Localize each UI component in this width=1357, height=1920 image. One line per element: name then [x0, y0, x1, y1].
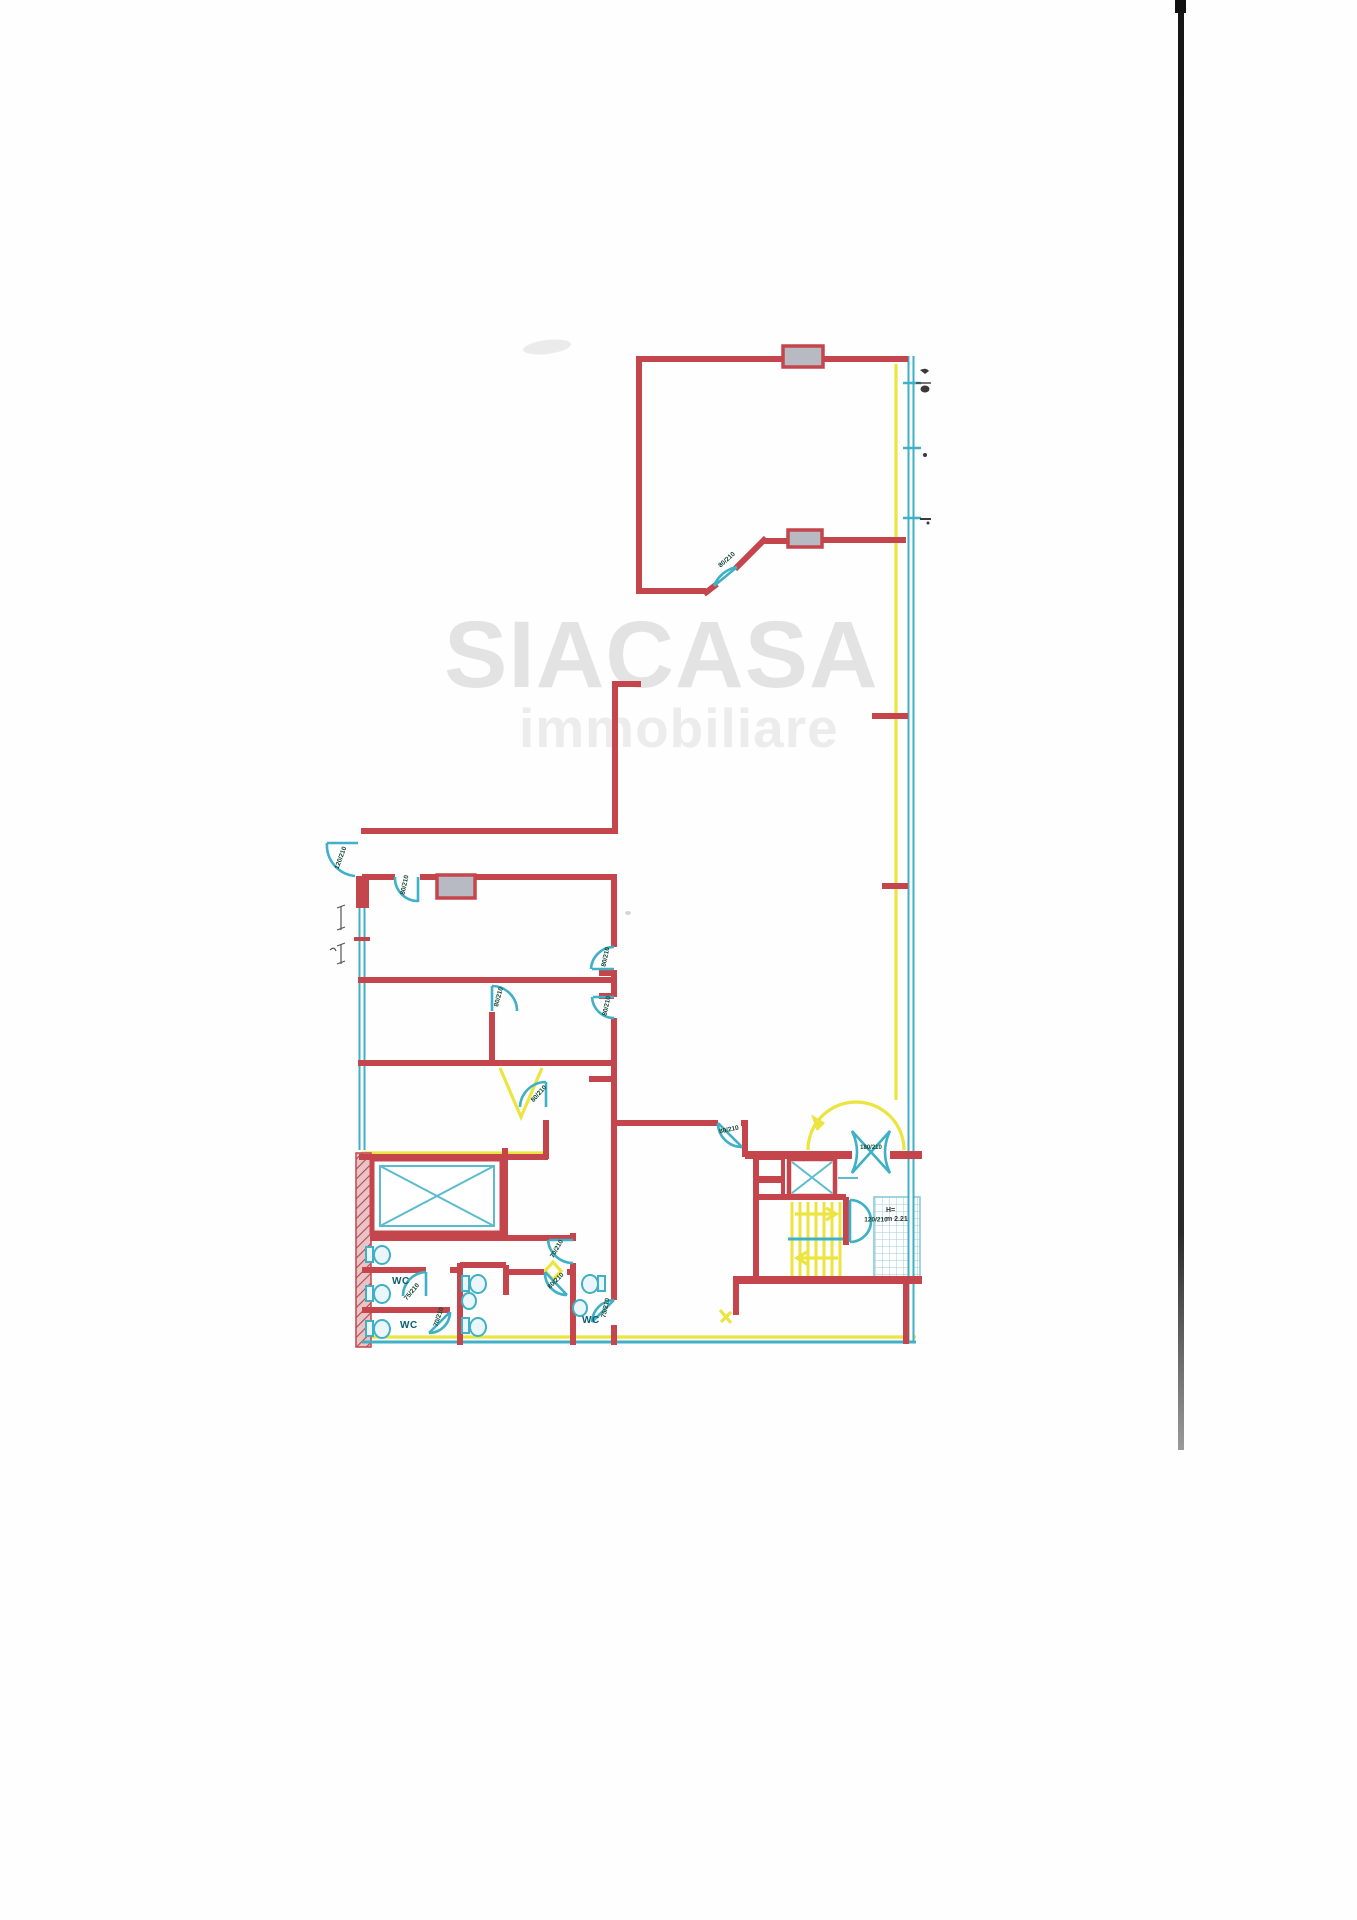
height-note-value: m 2.21: [886, 1215, 908, 1224]
floorplan-drawing: [0, 0, 1357, 1920]
door-arc: [714, 567, 737, 586]
scanner-line: [1175, 0, 1186, 1450]
sink: [462, 1293, 476, 1309]
room-label-wc: WC: [400, 1320, 418, 1331]
room-label-wc: WC: [582, 1315, 600, 1326]
dimension-marks: [330, 905, 345, 964]
toilet: [366, 1320, 390, 1338]
scanned-floorplan-page: SIACASA immobiliare: [0, 0, 1357, 1920]
toilet: [462, 1318, 486, 1336]
sink: [573, 1300, 587, 1316]
entry-jamb: [356, 876, 369, 908]
door-size-label: 120/210: [864, 1217, 888, 1224]
toilet: [366, 1285, 390, 1303]
margin-tick-marks: [916, 369, 931, 525]
door-size-label: 180/210: [860, 1145, 882, 1151]
window-boxes: [437, 346, 823, 898]
elevator-small: [757, 1158, 858, 1197]
curtain-wall: [903, 356, 921, 1341]
height-note-prefix: H=: [886, 1206, 908, 1215]
toilet: [462, 1275, 486, 1293]
left-window-wall: [354, 906, 370, 1150]
toilet: [582, 1275, 605, 1293]
room-label-wc: WC: [392, 1276, 410, 1287]
bowtie-door: [852, 1131, 890, 1173]
height-note: H= m 2.21: [886, 1206, 908, 1224]
toilet: [366, 1246, 390, 1264]
elevator-large: [372, 1159, 502, 1233]
